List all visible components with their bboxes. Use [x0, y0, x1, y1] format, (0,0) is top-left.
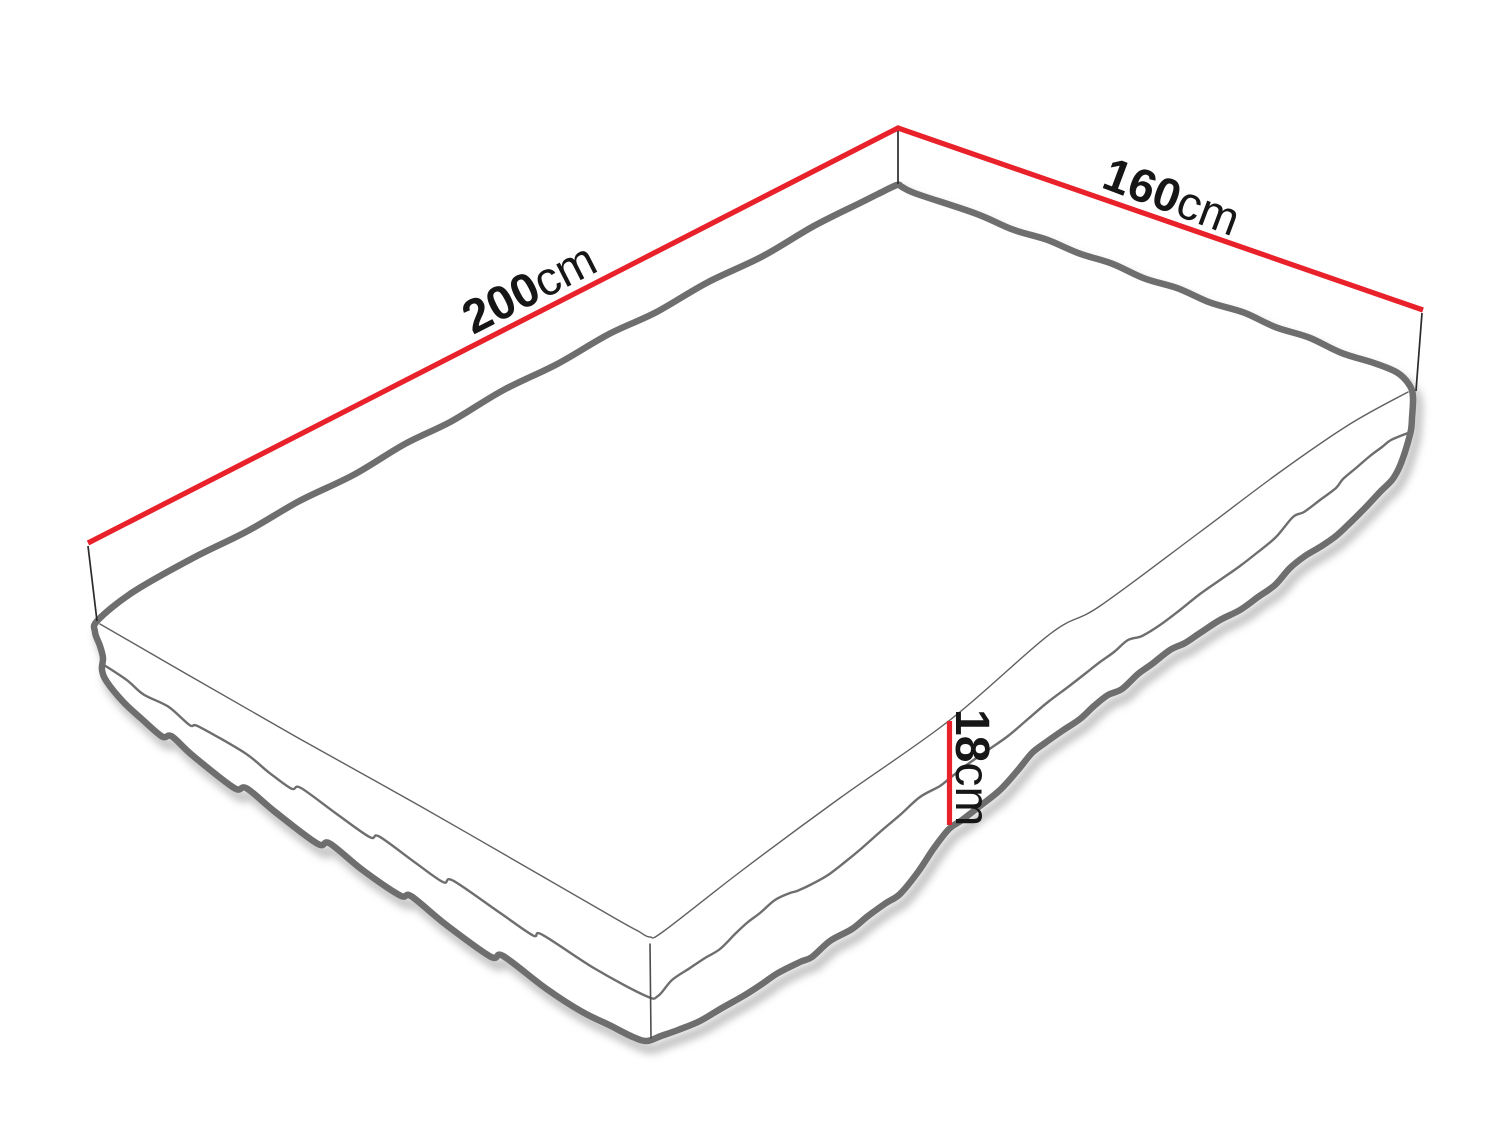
svg-text:18cm: 18cm: [945, 709, 998, 826]
